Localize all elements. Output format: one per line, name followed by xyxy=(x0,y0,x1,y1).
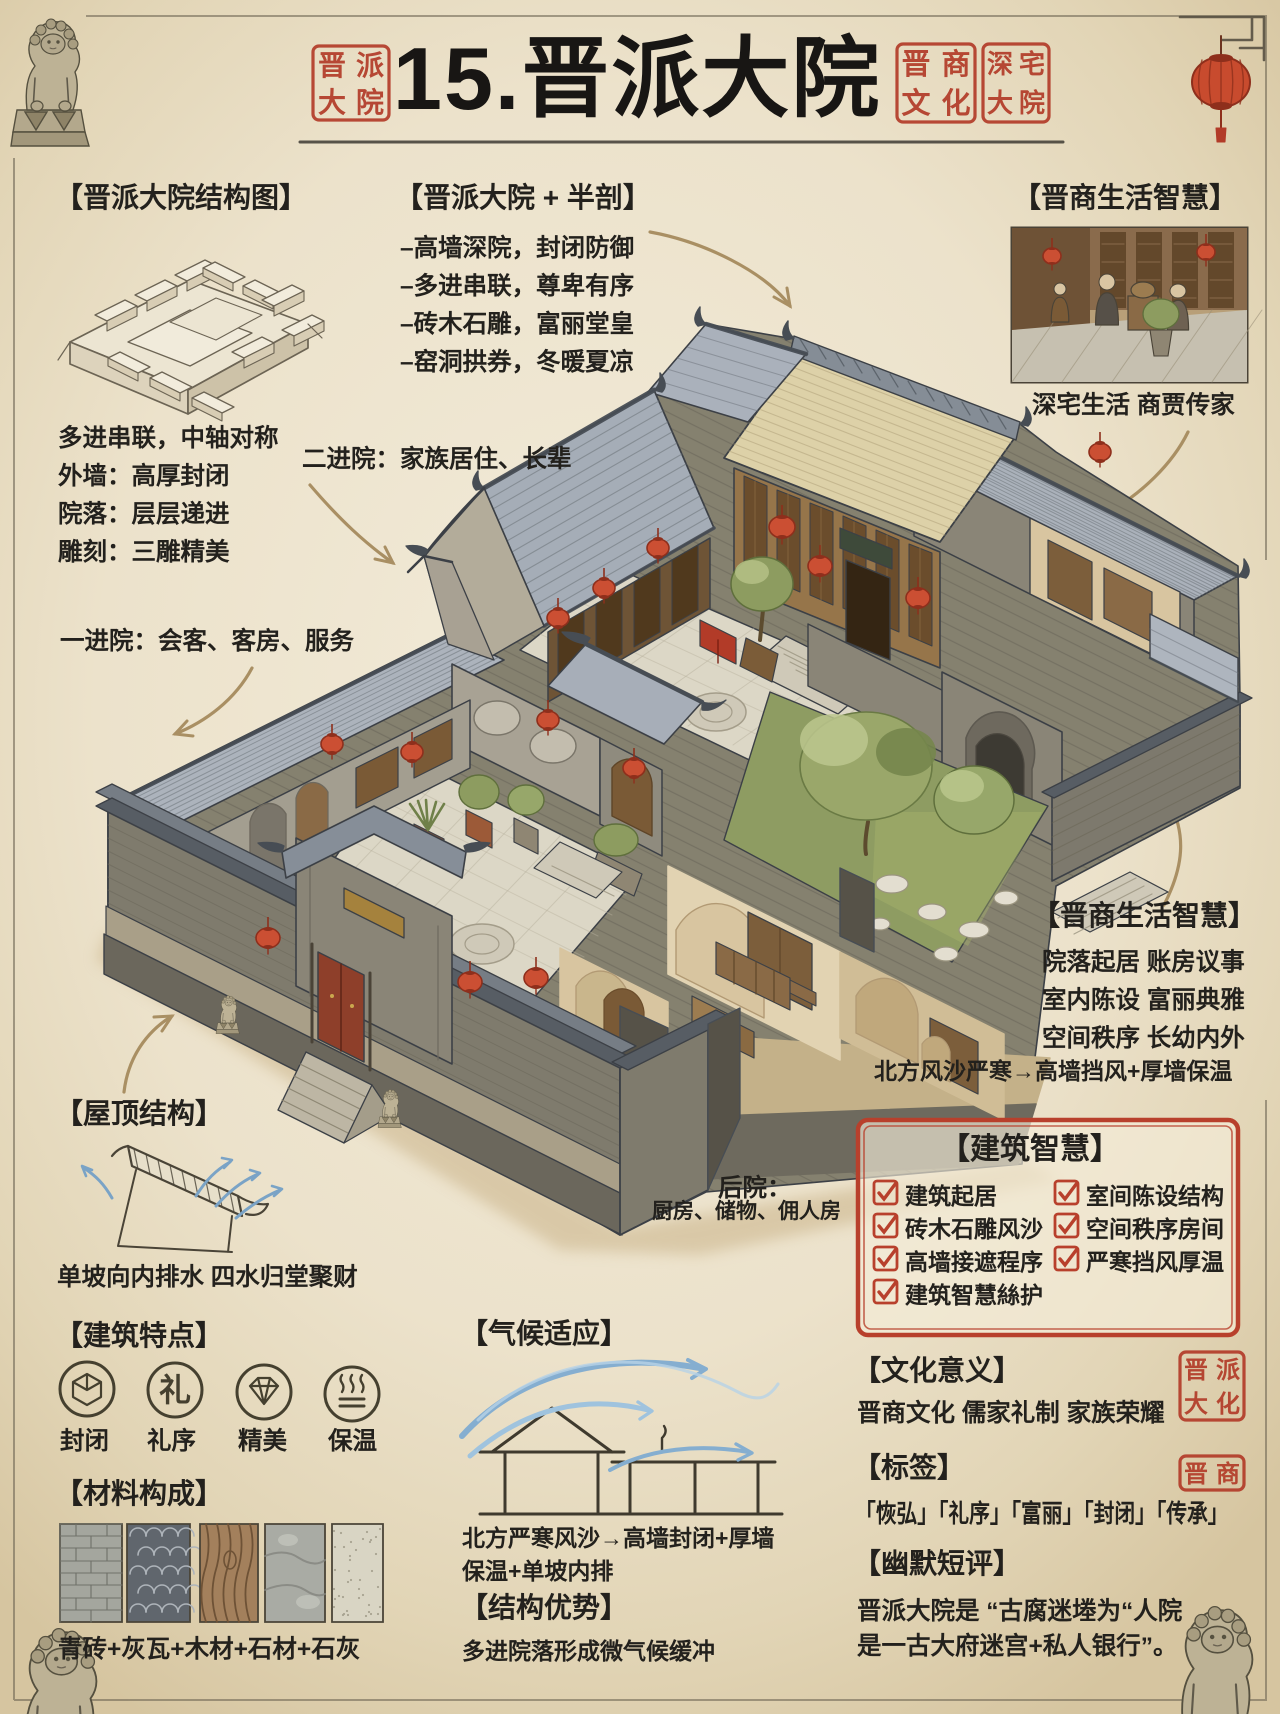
svg-text:商: 商 xyxy=(1216,1460,1240,1488)
svg-text:化: 化 xyxy=(941,87,970,120)
svg-text:文: 文 xyxy=(901,86,931,120)
svg-text:派: 派 xyxy=(1216,1357,1240,1384)
svg-text:晋: 晋 xyxy=(318,50,346,81)
svg-text:礼: 礼 xyxy=(159,1372,191,1408)
svg-text:晋: 晋 xyxy=(1184,1357,1208,1384)
svg-text:化: 化 xyxy=(1216,1390,1240,1418)
svg-text:晋: 晋 xyxy=(901,49,930,81)
svg-text:晋: 晋 xyxy=(1184,1461,1208,1488)
svg-text:大: 大 xyxy=(1184,1391,1208,1418)
svg-text:派: 派 xyxy=(356,50,384,81)
svg-text:院: 院 xyxy=(356,86,384,118)
svg-text:院: 院 xyxy=(1019,88,1045,118)
svg-text:宅: 宅 xyxy=(1019,49,1045,79)
svg-text:商: 商 xyxy=(941,48,970,81)
svg-text:深: 深 xyxy=(987,49,1013,79)
svg-text:大: 大 xyxy=(318,87,346,118)
svg-text:大: 大 xyxy=(987,88,1013,118)
